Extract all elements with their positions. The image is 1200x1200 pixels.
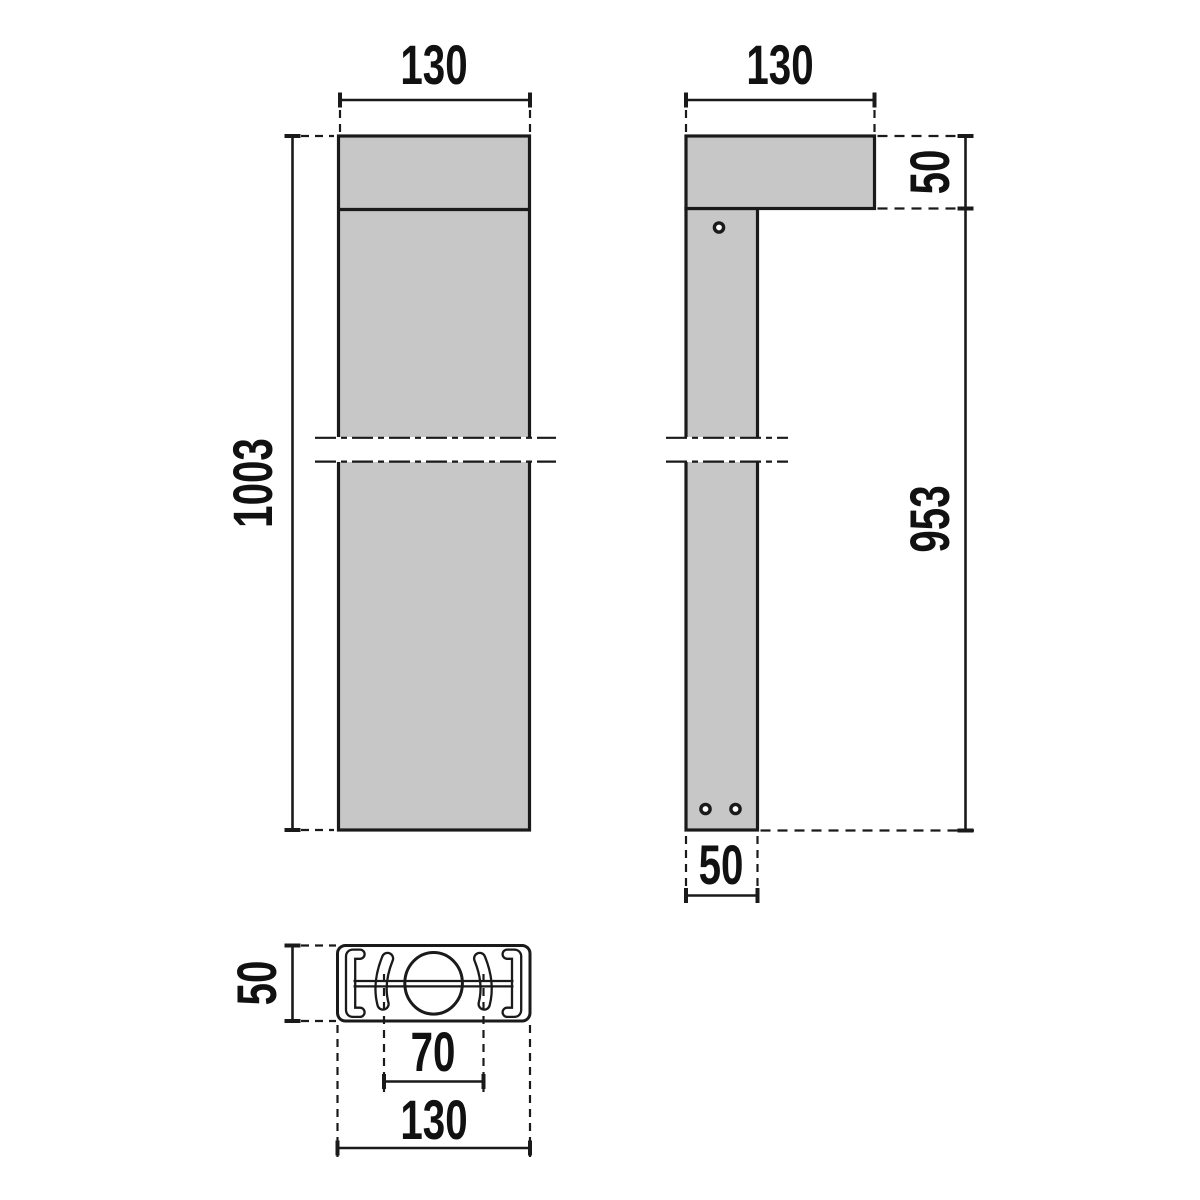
- technical-drawing-canvas: 130 1003 130: [0, 0, 1200, 1200]
- front-width-label-group: 130: [400, 35, 467, 97]
- top-width-label-group: 130: [400, 1090, 467, 1152]
- front-width-label: 130: [400, 35, 467, 97]
- screw-bottom-right: [731, 804, 740, 813]
- front-height-label: 1003: [223, 438, 285, 528]
- top-depth-label-group: 50: [227, 961, 289, 1006]
- screw-bottom-left: [701, 804, 710, 813]
- front-break-gap: [331, 437, 537, 462]
- top-width-label: 130: [400, 1090, 467, 1152]
- side-head-height-label-group: 50: [900, 150, 962, 195]
- side-head: [686, 136, 875, 209]
- front-view: 130 1003: [223, 35, 556, 832]
- bollard-dimension-drawing: 130 1003 130: [0, 0, 1200, 1200]
- side-post-height-label-group: 953: [900, 485, 962, 552]
- front-body: [339, 136, 530, 830]
- side-width-label: 130: [746, 35, 813, 97]
- top-depth-label: 50: [227, 961, 289, 1006]
- screw-top: [714, 223, 723, 232]
- side-head-height-label: 50: [900, 150, 962, 195]
- top-slot-spacing-label: 70: [411, 1022, 456, 1084]
- top-view: 50 70 130: [227, 944, 532, 1158]
- side-post-width-label: 50: [699, 835, 744, 897]
- top-outline: [338, 946, 531, 1022]
- side-post-width-label-group: 50: [699, 835, 744, 897]
- side-post: [686, 209, 758, 831]
- side-post-height-label: 953: [900, 485, 962, 552]
- side-width-label-group: 130: [746, 35, 813, 97]
- side-break-gap: [678, 437, 766, 462]
- front-height-label-group: 1003: [223, 438, 285, 528]
- top-slot-spacing-label-group: 70: [411, 1022, 456, 1084]
- side-view: 130 50 953 50: [666, 35, 974, 906]
